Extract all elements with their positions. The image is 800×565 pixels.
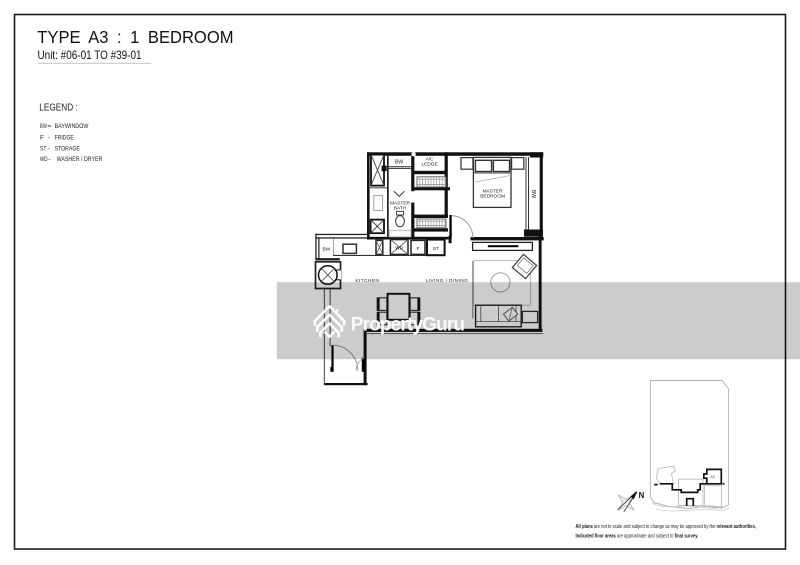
svg-text:N: N: [639, 491, 645, 500]
svg-text:BW: BW: [323, 247, 331, 253]
svg-text:WD: WD: [395, 246, 403, 251]
svg-text:Indicated floor areas are appr: Indicated floor areas are approximate an…: [576, 533, 699, 540]
svg-text:WD-WASHER / DRYER: WD-WASHER / DRYER: [40, 156, 103, 163]
svg-text:BATH: BATH: [394, 206, 407, 212]
svg-text:BW: BW: [530, 190, 536, 198]
svg-text:F: F: [417, 246, 420, 251]
svg-text:PropertyGuru: PropertyGuru: [351, 314, 465, 335]
svg-text:All plans are not to scale and: All plans are not to scale and subject t…: [576, 523, 757, 530]
svg-text:TYPE A3 : 1 BEDROOM: TYPE A3 : 1 BEDROOM: [37, 27, 233, 47]
svg-text:BW: BW: [395, 159, 403, 165]
svg-text:A3: A3: [711, 475, 715, 479]
svg-text:LEGEND :: LEGEND :: [39, 102, 78, 113]
svg-text:Unit: #06-01 TO #39-01: Unit: #06-01 TO #39-01: [38, 48, 142, 62]
svg-text:ST-STORAGE: ST-STORAGE: [40, 146, 80, 153]
svg-text:BW=BAYWINDOW: BW=BAYWINDOW: [40, 123, 89, 130]
svg-text:ST: ST: [433, 246, 439, 251]
svg-text:BEDROOM: BEDROOM: [480, 194, 505, 200]
svg-text:LEDGE: LEDGE: [421, 161, 437, 167]
